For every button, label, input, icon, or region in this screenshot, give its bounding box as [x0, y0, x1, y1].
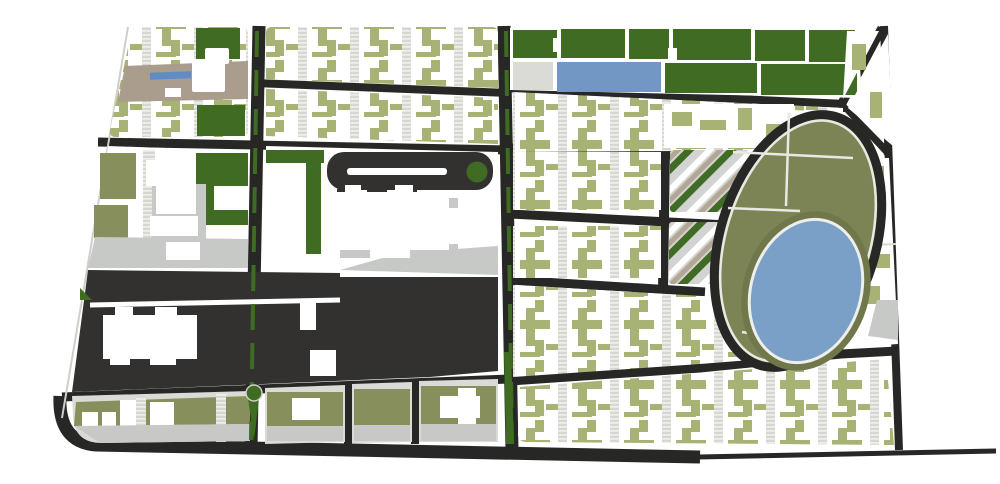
park-strip [306, 150, 321, 254]
building [449, 208, 471, 244]
dark-cbd-block [72, 270, 498, 392]
landmark-building [333, 192, 449, 250]
building [165, 88, 181, 97]
building [370, 248, 410, 258]
landmark-building [103, 315, 197, 359]
green-band [510, 28, 862, 98]
building [156, 178, 196, 214]
green-parcel [629, 29, 669, 59]
building-slot [300, 302, 316, 330]
building [166, 242, 200, 260]
plaza-parcel [513, 62, 553, 90]
building [214, 186, 248, 210]
south-block-center-3 [419, 379, 498, 442]
masterplan-map [0, 0, 1000, 484]
grid-row-b [513, 152, 661, 210]
green-parcel [755, 30, 805, 61]
building [110, 357, 130, 365]
tan-heritage-band [118, 61, 248, 102]
olive-patch [100, 153, 136, 199]
building-slot [310, 350, 336, 376]
building [345, 185, 361, 194]
gray-band [267, 426, 343, 441]
gray-band [421, 424, 496, 441]
building [458, 388, 476, 426]
east-vertical-road [663, 146, 665, 292]
green-parcel [513, 30, 557, 58]
gray-band [354, 425, 410, 441]
park-parcel [197, 105, 245, 136]
building [205, 48, 229, 64]
grid-block-north-1 [266, 27, 498, 88]
campus-block [88, 146, 248, 268]
masterplan-canvas [0, 0, 1000, 484]
green-court [467, 162, 488, 183]
pool [557, 62, 661, 92]
roundabout [246, 385, 262, 401]
civic-center-block [266, 146, 498, 275]
building-notch [668, 48, 677, 60]
building [150, 216, 198, 236]
bottom-road-east [698, 451, 996, 457]
building-notch [553, 38, 561, 52]
green-parcel [673, 29, 751, 60]
olive-patch [94, 205, 128, 238]
building [150, 357, 176, 365]
canal-strip [150, 71, 191, 79]
green-parcel [761, 64, 857, 95]
bar-slot [347, 168, 447, 175]
green-parcel [561, 29, 625, 58]
south-block-center-1 [265, 385, 345, 444]
building [115, 307, 133, 316]
heritage-block [110, 27, 248, 137]
south-block-center-2 [352, 382, 412, 443]
building [155, 307, 177, 316]
building [395, 185, 413, 194]
south-block-west [72, 391, 250, 443]
green-parcel [665, 63, 757, 93]
gray-band [74, 424, 250, 443]
grid-row-c [513, 226, 661, 278]
grid-block-north-2 [266, 89, 498, 144]
building [292, 398, 320, 420]
